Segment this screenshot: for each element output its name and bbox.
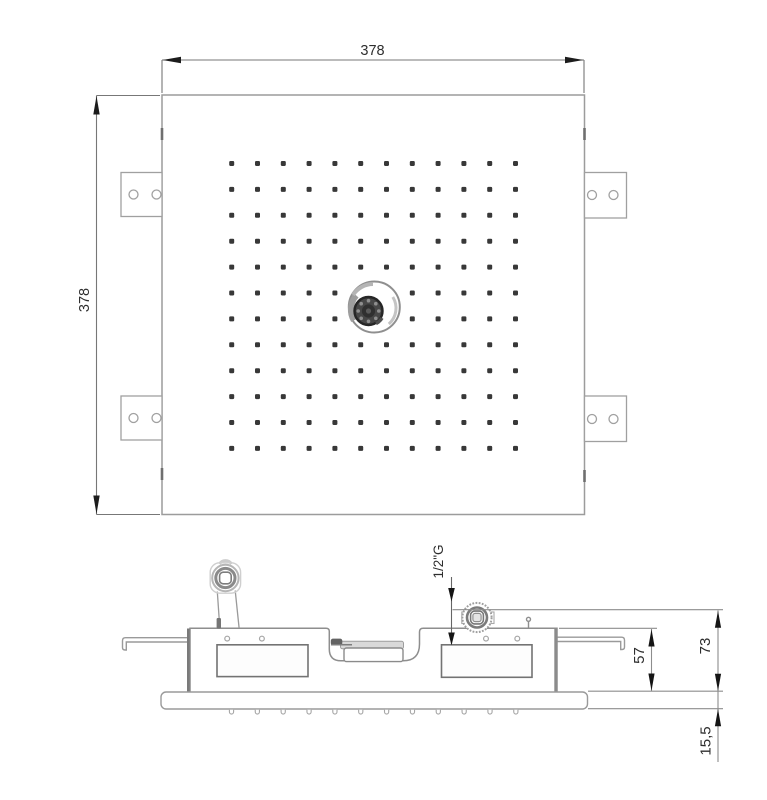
svg-text:378: 378 bbox=[77, 288, 93, 312]
svg-text:15,5: 15,5 bbox=[698, 726, 715, 755]
svg-text:378: 378 bbox=[360, 43, 384, 59]
svg-text:57: 57 bbox=[631, 647, 648, 664]
svg-text:73: 73 bbox=[697, 638, 714, 655]
svg-text:1/2"G: 1/2"G bbox=[431, 544, 446, 578]
